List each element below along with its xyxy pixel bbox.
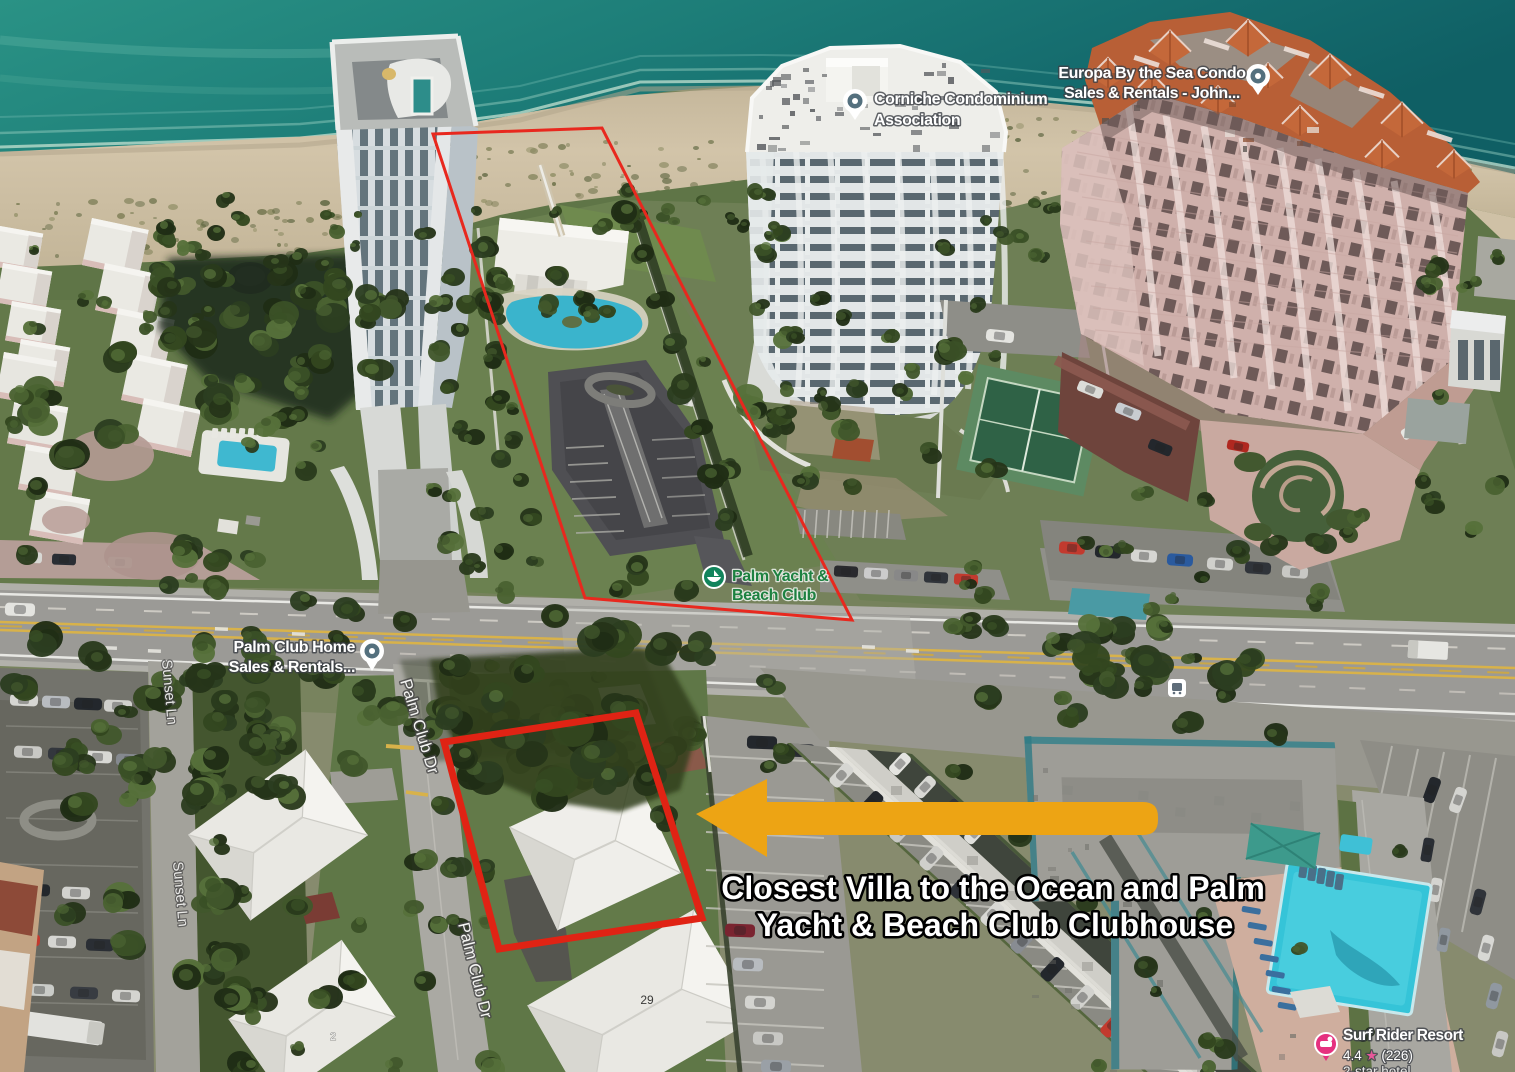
svg-text:Closest Villa to the Ocean and: Closest Villa to the Ocean and Palm xyxy=(721,870,1265,906)
svg-text:Surf Rider Resort: Surf Rider Resort xyxy=(1343,1027,1463,1044)
svg-text:4.4 ★ (226): 4.4 ★ (226) xyxy=(1343,1048,1413,1063)
svg-text:29: 29 xyxy=(640,993,654,1007)
svg-text:Yacht & Beach Club Clubhouse: Yacht & Beach Club Clubhouse xyxy=(757,907,1234,943)
svg-text:2-star hotel: 2-star hotel xyxy=(1343,1064,1411,1072)
svg-text:2: 2 xyxy=(330,1031,336,1043)
